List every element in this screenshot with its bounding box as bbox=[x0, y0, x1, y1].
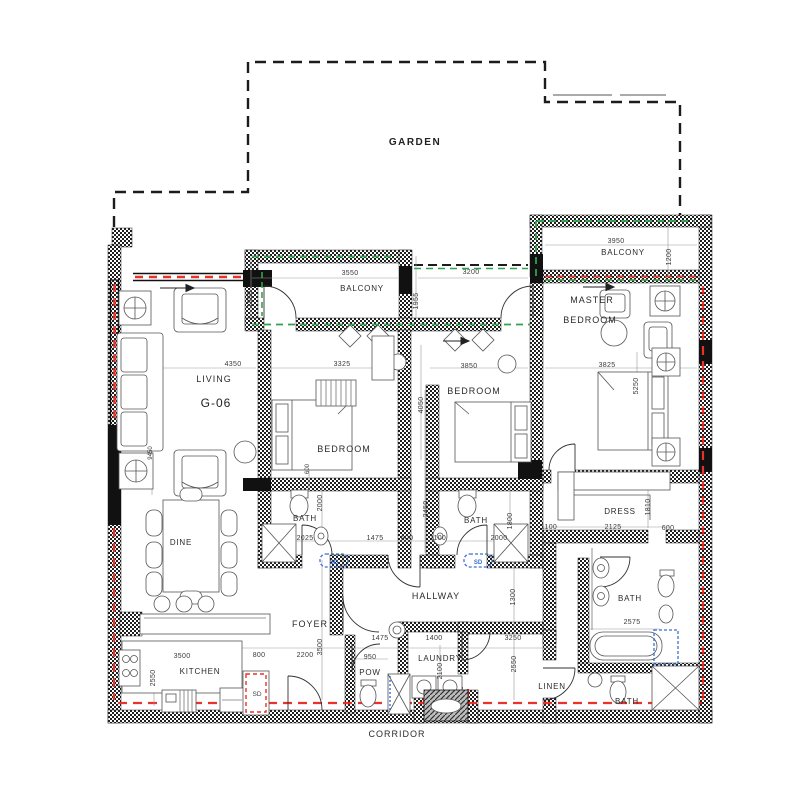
dim-1475-foyer: 1475 bbox=[372, 635, 389, 642]
side-table bbox=[650, 286, 680, 316]
dim-3500-kitchen: 3500 bbox=[174, 653, 191, 660]
label-bedroom-2: BEDROOM bbox=[447, 386, 501, 396]
side-table bbox=[119, 291, 151, 325]
service-shaft bbox=[424, 690, 468, 721]
label-garden: GARDEN bbox=[389, 137, 441, 148]
label-balcony-2: BALCONY bbox=[601, 248, 645, 257]
dim-2125: 2125 bbox=[605, 524, 622, 531]
label-linen: LINEN bbox=[538, 682, 566, 691]
floor-plan-page: GARDEN bbox=[0, 0, 800, 800]
label-dress: DRESS bbox=[604, 507, 636, 516]
dim-4350: 4350 bbox=[225, 361, 242, 368]
label-dine: DINE bbox=[170, 538, 192, 547]
dim-2200: 2200 bbox=[297, 652, 314, 659]
wardrobe-unit bbox=[652, 348, 680, 376]
dim-2550-linen: 2550 bbox=[511, 656, 518, 673]
dim-1100-dress: 1100 bbox=[541, 524, 557, 531]
label-living: LIVING bbox=[196, 374, 232, 384]
dim-3325: 3325 bbox=[334, 361, 351, 368]
bathtub bbox=[590, 632, 662, 660]
label-unit-number: G-06 bbox=[201, 396, 232, 410]
sink bbox=[588, 673, 602, 687]
closet bbox=[388, 674, 410, 714]
label-master-2: BEDROOM bbox=[563, 315, 617, 325]
wardrobe-unit bbox=[652, 438, 680, 466]
lounge-chairs bbox=[339, 325, 406, 380]
door-dress bbox=[549, 444, 575, 470]
bar-counter bbox=[140, 596, 270, 634]
dim-1400: 1400 bbox=[426, 635, 443, 642]
dim-5250: 5250 bbox=[633, 378, 640, 395]
dim-1810: 1810 bbox=[645, 499, 652, 516]
double-sink bbox=[592, 548, 609, 630]
round-table bbox=[234, 441, 256, 463]
shower bbox=[262, 524, 296, 562]
door-bath2 bbox=[457, 525, 487, 555]
dim-950: 950 bbox=[364, 654, 377, 661]
dim-2575: 2575 bbox=[624, 619, 641, 626]
dim-3950: 3950 bbox=[608, 238, 625, 245]
kitchen-counter bbox=[119, 641, 244, 712]
bed bbox=[272, 400, 352, 470]
label-pow: POW bbox=[359, 668, 381, 677]
bed bbox=[455, 402, 531, 462]
shower bbox=[652, 666, 699, 710]
dim-600-bed1: 600 bbox=[305, 463, 311, 474]
dim-2025: 2025 bbox=[297, 535, 314, 542]
dim-1955: 1955 bbox=[413, 293, 420, 310]
dim-3825: 3825 bbox=[599, 362, 616, 369]
dim-600-shaft: 600 bbox=[401, 535, 414, 542]
dim-1475-hall: 1475 bbox=[367, 535, 384, 542]
toilet bbox=[360, 680, 376, 707]
dim-2000-bath1: 2000 bbox=[317, 495, 324, 512]
dim-1800: 1800 bbox=[507, 513, 514, 530]
label-bath-1: BATH bbox=[293, 514, 317, 523]
dim-1300: 1300 bbox=[510, 589, 517, 606]
armchair bbox=[174, 288, 226, 332]
dim-3850: 3850 bbox=[461, 363, 478, 370]
sofa bbox=[117, 333, 163, 451]
dim-800: 800 bbox=[253, 652, 266, 659]
label-hallway: HALLWAY bbox=[412, 591, 460, 601]
toilet bbox=[658, 570, 674, 597]
dim-3500-foyer: 3500 bbox=[317, 639, 324, 656]
lounge-chairs bbox=[444, 329, 516, 373]
door-living-balcony bbox=[264, 286, 296, 318]
door-hallway bbox=[343, 596, 379, 632]
bidet bbox=[659, 605, 673, 623]
dim-1200: 1200 bbox=[666, 249, 673, 266]
sink bbox=[314, 527, 328, 545]
label-bedroom-1: BEDROOM bbox=[317, 444, 371, 454]
label-sd-kitchen: SD bbox=[252, 691, 261, 698]
dim-3200: 3200 bbox=[463, 269, 480, 276]
floor-plan-svg: GARDEN bbox=[0, 0, 800, 800]
dim-2100: 2100 bbox=[437, 663, 444, 680]
dim-1100-hall: 1100 bbox=[430, 535, 446, 542]
dim-3550: 3550 bbox=[342, 270, 359, 277]
wardrobe bbox=[316, 380, 356, 406]
toilet bbox=[458, 490, 476, 517]
label-master-1: MASTER bbox=[570, 295, 614, 305]
toilet bbox=[290, 490, 308, 517]
label-corridor: CORRIDOR bbox=[369, 729, 426, 739]
label-balcony-1: BALCONY bbox=[340, 284, 384, 293]
dim-9450: 9450 bbox=[148, 446, 154, 460]
label-bath-3: BATH bbox=[615, 697, 639, 706]
door-entry bbox=[288, 676, 322, 710]
door-master-balcony bbox=[501, 286, 533, 318]
label-laundry: LAUNDRY bbox=[418, 654, 462, 663]
label-foyer: FOYER bbox=[292, 619, 328, 629]
label-sd-2: SD bbox=[474, 560, 483, 566]
label-sd-1: SD bbox=[330, 560, 339, 566]
dim-1950: 1950 bbox=[247, 291, 254, 308]
label-master-bath: BATH bbox=[618, 594, 642, 603]
dim-2000-bath2: 2000 bbox=[491, 535, 508, 542]
dim-3250: 3250 bbox=[505, 635, 522, 642]
dim-4050: 4050 bbox=[418, 397, 425, 414]
label-kitchen: KITCHEN bbox=[180, 667, 221, 676]
dim-2550-kitchen: 2550 bbox=[150, 670, 157, 687]
dim-2450: 2450 bbox=[423, 501, 430, 518]
dim-600-dress: 600 bbox=[662, 525, 675, 532]
label-bath-2: BATH bbox=[464, 516, 488, 525]
